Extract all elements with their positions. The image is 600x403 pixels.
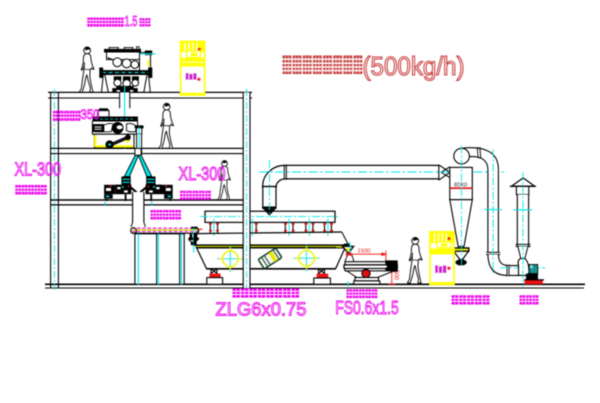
svg-text:ZLG6x0.75: ZLG6x0.75: [216, 299, 307, 320]
svg-text:1.5: 1.5: [125, 13, 138, 30]
svg-text:XL-300: XL-300: [15, 160, 62, 180]
svg-text:1500: 1500: [358, 249, 371, 255]
svg-text:8DK0: 8DK0: [454, 182, 467, 188]
svg-text:XL-300: XL-300: [179, 164, 226, 184]
svg-text:FS0.6x1.5: FS0.6x1.5: [335, 298, 399, 318]
svg-text:350: 350: [81, 106, 100, 122]
svg-text:(500kg/h): (500kg/h): [363, 51, 465, 81]
